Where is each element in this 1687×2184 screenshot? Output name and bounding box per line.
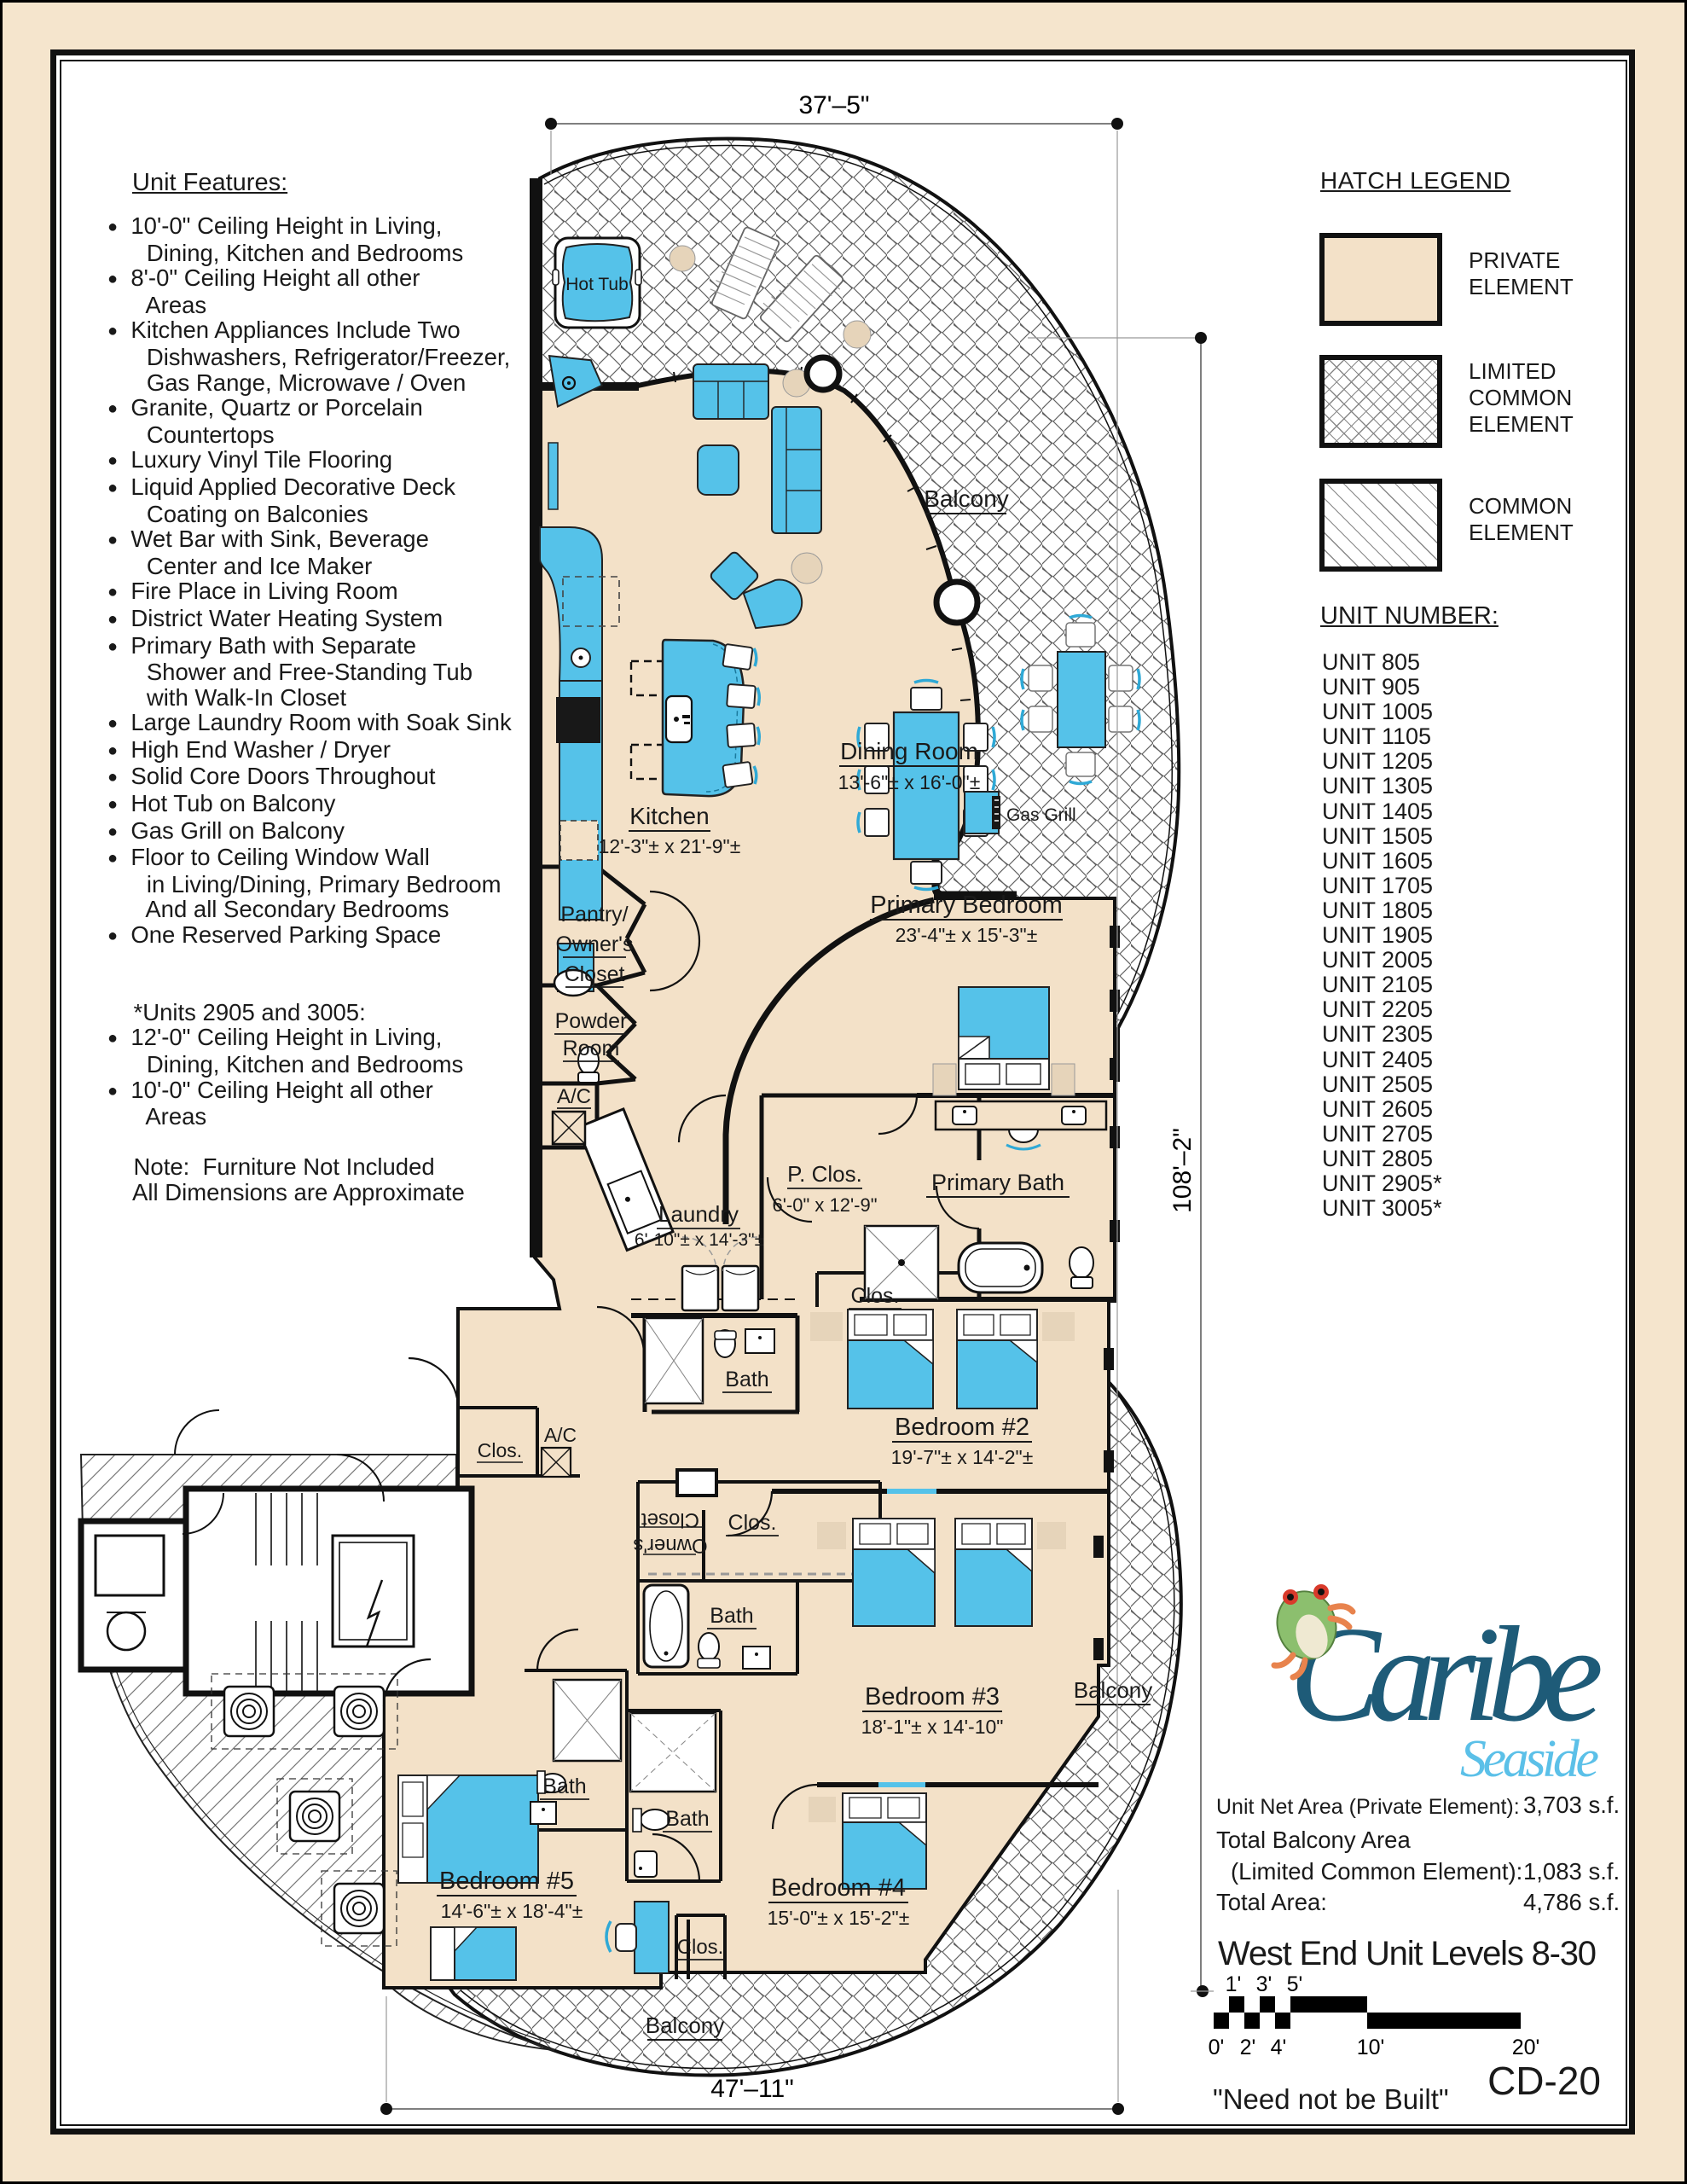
svg-text:Bath: Bath bbox=[710, 1604, 753, 1628]
svg-text:18'-1"± x 14'-10": 18'-1"± x 14'-10" bbox=[861, 1716, 1004, 1738]
svg-text:Bedroom #5: Bedroom #5 bbox=[439, 1867, 574, 1895]
svg-text:A/C: A/C bbox=[557, 1085, 591, 1108]
svg-text:Balcony: Balcony bbox=[1074, 1677, 1153, 1703]
svg-text:Pantry/: Pantry/ bbox=[560, 903, 628, 926]
svg-text:12'-3"± x 21'-9"±: 12'-3"± x 21'-9"± bbox=[599, 835, 741, 857]
svg-text:Clos.: Clos. bbox=[478, 1439, 522, 1461]
svg-text:Laundry: Laundry bbox=[658, 1201, 739, 1227]
svg-text:Kitchen: Kitchen bbox=[629, 803, 709, 829]
svg-text:15'-0"± x 15'-2"±: 15'-0"± x 15'-2"± bbox=[768, 1907, 910, 1929]
svg-text:1': 1' bbox=[1226, 1972, 1242, 1996]
svg-text:Powder: Powder bbox=[555, 1009, 628, 1033]
svg-text:20': 20' bbox=[1512, 2036, 1540, 2059]
svg-text:Bedroom #4: Bedroom #4 bbox=[771, 1874, 906, 1902]
svg-text:37'–5": 37'–5" bbox=[798, 91, 869, 119]
svg-text:47'–11": 47'–11" bbox=[710, 2075, 794, 2103]
svg-text:0': 0' bbox=[1209, 2036, 1225, 2059]
svg-text:Room: Room bbox=[563, 1037, 620, 1060]
svg-text:5': 5' bbox=[1287, 1972, 1303, 1996]
svg-text:Gas Grill: Gas Grill bbox=[1006, 805, 1076, 825]
svg-text:Balcony: Balcony bbox=[646, 2013, 725, 2038]
svg-text:6'-10"± x 14'-3"±: 6'-10"± x 14'-3"± bbox=[635, 1230, 764, 1250]
svg-text:2': 2' bbox=[1240, 2036, 1256, 2059]
svg-text:Bath: Bath bbox=[665, 1807, 709, 1831]
svg-text:Seaside: Seaside bbox=[1460, 1730, 1599, 1788]
svg-text:Dining Room: Dining Room bbox=[840, 738, 978, 764]
svg-text:Primary Bath: Primary Bath bbox=[931, 1170, 1064, 1195]
svg-text:Clos.: Clos. bbox=[851, 1284, 900, 1308]
svg-text:23'-4"± x 15'-3"±: 23'-4"± x 15'-3"± bbox=[896, 924, 1038, 946]
svg-text:Primary Bedroom: Primary Bedroom bbox=[870, 892, 1063, 919]
svg-text:Clos.: Clos. bbox=[677, 1936, 724, 1959]
svg-text:Owner's: Owner's bbox=[633, 1534, 707, 1557]
svg-text:108'–2": 108'–2" bbox=[1168, 1128, 1197, 1213]
svg-text:Closet: Closet bbox=[641, 1508, 699, 1531]
svg-text:6'-0" x 12'-9": 6'-0" x 12'-9" bbox=[772, 1194, 877, 1216]
svg-text:Owner's: Owner's bbox=[556, 932, 634, 956]
svg-text:13'-6"± x 16'-0"±: 13'-6"± x 16'-0"± bbox=[838, 771, 981, 793]
svg-text:Bath: Bath bbox=[542, 1774, 586, 1798]
svg-text:Balcony: Balcony bbox=[924, 485, 1009, 512]
svg-text:Clos.: Clos. bbox=[728, 1511, 777, 1535]
svg-text:A/C: A/C bbox=[544, 1424, 577, 1446]
svg-text:P. Clos.: P. Clos. bbox=[787, 1161, 862, 1187]
svg-text:Closet: Closet bbox=[565, 962, 625, 986]
svg-text:4': 4' bbox=[1271, 2036, 1287, 2059]
svg-text:Bath: Bath bbox=[725, 1368, 768, 1391]
svg-text:14'-6"± x 18'-4"±: 14'-6"± x 18'-4"± bbox=[441, 1900, 583, 1922]
svg-text:10': 10' bbox=[1357, 2036, 1385, 2059]
svg-text:Bedroom #2: Bedroom #2 bbox=[895, 1414, 1029, 1441]
svg-text:Hot Tub: Hot Tub bbox=[565, 275, 629, 294]
svg-text:3': 3' bbox=[1256, 1972, 1272, 1996]
svg-text:19'-7"± x 14'-2"±: 19'-7"± x 14'-2"± bbox=[891, 1446, 1034, 1468]
svg-text:Bedroom #3: Bedroom #3 bbox=[865, 1683, 1000, 1711]
